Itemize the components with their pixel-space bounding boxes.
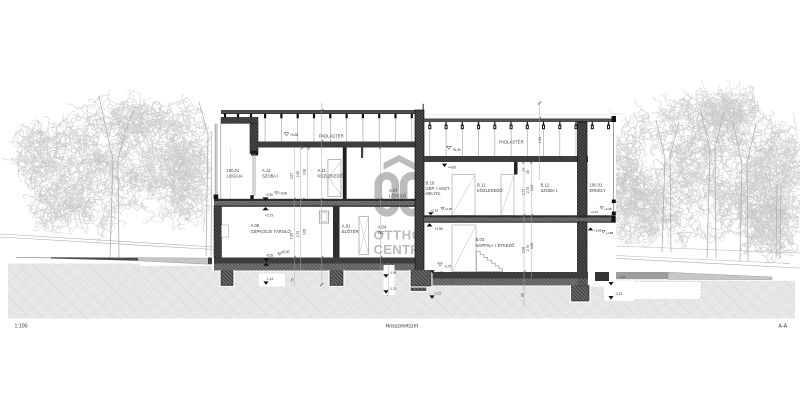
svg-text:GÉPKOCSI TÁROLÓ: GÉPKOCSI TÁROLÓ xyxy=(251,229,292,234)
svg-text:LÉPCSŐ: LÉPCSŐ xyxy=(389,194,407,199)
svg-text:80: 80 xyxy=(521,293,525,297)
svg-text:1,98: 1,98 xyxy=(538,137,542,144)
svg-text:+2,73: +2,73 xyxy=(265,213,273,217)
svg-text:HELYIS.: HELYIS. xyxy=(426,191,442,196)
svg-text:2,79: 2,79 xyxy=(526,187,530,194)
svg-text:SZOBA I.: SZOBA I. xyxy=(262,174,279,179)
svg-text:A-A: A-A xyxy=(779,323,788,329)
svg-text:+1,85: +1,85 xyxy=(594,228,602,232)
svg-text:-2,21: -2,21 xyxy=(390,286,397,290)
svg-text:KÖZLEKEDŐ: KÖZLEKEDŐ xyxy=(318,174,344,179)
svg-text:A.11: A.11 xyxy=(318,168,327,173)
svg-text:+2,28: +2,28 xyxy=(604,207,612,211)
svg-text:+6,28: +6,28 xyxy=(290,133,298,137)
svg-text:LOGGIA: LOGGIA xyxy=(227,174,243,179)
svg-text:WC: WC xyxy=(378,230,385,235)
svg-text:+1,95: +1,95 xyxy=(435,227,443,231)
svg-text:A.07: A.07 xyxy=(389,188,398,193)
svg-text:PADLÁSTÉR: PADLÁSTÉR xyxy=(319,134,344,139)
svg-text:+2,30: +2,30 xyxy=(445,207,453,211)
svg-text:-1,41: -1,41 xyxy=(619,275,626,279)
svg-text:A.04: A.04 xyxy=(378,225,387,230)
svg-text:-2,21: -2,21 xyxy=(434,292,441,296)
svg-text:NAPPALI + ÉTKEZŐ: NAPPALI + ÉTKEZŐ xyxy=(476,243,516,248)
svg-text:-1,50: -1,50 xyxy=(437,270,444,274)
svg-text:3,05: 3,05 xyxy=(530,243,534,250)
svg-text:KÖZLEKEDŐ: KÖZLEKEDŐ xyxy=(477,188,503,193)
svg-text:A.12: A.12 xyxy=(262,168,271,173)
svg-text:SZOBA I.: SZOBA I. xyxy=(541,188,558,193)
svg-text:-0,75: -0,75 xyxy=(444,264,451,268)
svg-text:GÉP. / HÁZT.: GÉP. / HÁZT. xyxy=(426,186,451,191)
svg-text:Hosszmetszet: Hosszmetszet xyxy=(386,323,419,329)
svg-text:A.01: A.01 xyxy=(342,224,351,229)
svg-text:B.03: B.03 xyxy=(476,237,485,242)
svg-text:+2,90: +2,90 xyxy=(265,193,273,197)
svg-text:+2,53: +2,53 xyxy=(431,209,439,213)
svg-text:100.01: 100.01 xyxy=(227,168,240,173)
svg-text:+1,88: +1,88 xyxy=(606,231,614,235)
svg-text:-1,41: -1,41 xyxy=(266,277,273,281)
svg-text:+3,08: +3,08 xyxy=(279,191,287,195)
svg-text:75: 75 xyxy=(291,278,295,282)
svg-text:+4,00: +4,00 xyxy=(448,165,456,169)
svg-text:-2,21: -2,21 xyxy=(615,292,622,296)
svg-text:2,70: 2,70 xyxy=(526,245,530,252)
svg-text:-1,98: -1,98 xyxy=(390,271,397,275)
svg-text:ELŐTÉR: ELŐTÉR xyxy=(342,229,359,234)
svg-text:PADLÁSTÉR: PADLÁSTÉR xyxy=(499,140,524,145)
svg-text:3,06: 3,06 xyxy=(302,169,306,176)
svg-text:3,04: 3,04 xyxy=(530,185,534,192)
svg-text:2,87: 2,87 xyxy=(289,173,293,180)
svg-text:B.10: B.10 xyxy=(426,181,435,186)
svg-text:+2,07: +2,07 xyxy=(591,210,599,214)
svg-text:+5,34: +5,34 xyxy=(453,148,461,152)
svg-text:ERKÉLY: ERKÉLY xyxy=(590,188,606,193)
svg-text:100.01: 100.01 xyxy=(590,183,603,188)
svg-text:±0,00: ±0,00 xyxy=(281,250,289,254)
svg-text:26: 26 xyxy=(526,170,530,174)
svg-text:B.12: B.12 xyxy=(541,183,550,188)
svg-text:3,05: 3,05 xyxy=(302,229,306,236)
svg-text:A.08: A.08 xyxy=(251,223,260,228)
svg-text:2,70: 2,70 xyxy=(296,231,300,238)
svg-text:36: 36 xyxy=(307,146,311,150)
svg-text:2,50: 2,50 xyxy=(296,171,300,178)
svg-text:1:100: 1:100 xyxy=(15,323,28,329)
svg-text:-0,25: -0,25 xyxy=(266,254,273,258)
svg-text:B.11: B.11 xyxy=(477,183,486,188)
